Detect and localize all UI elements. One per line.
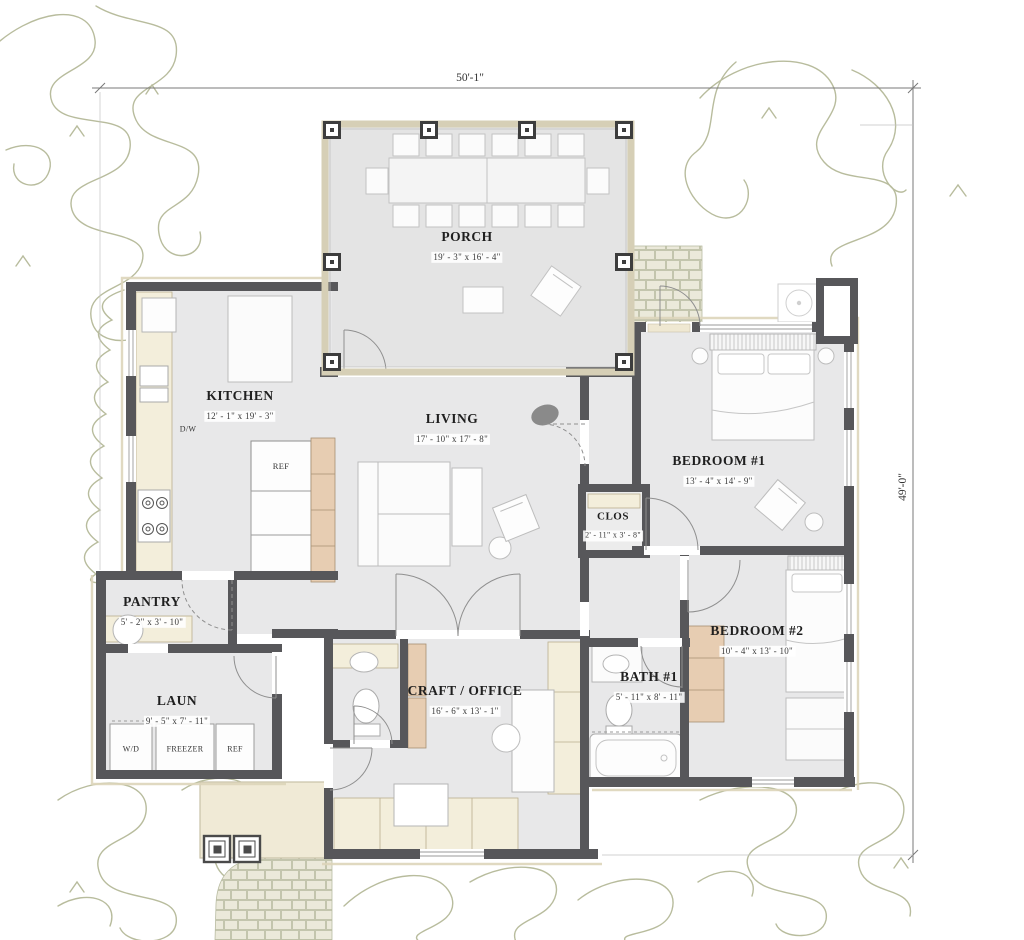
toilet	[606, 694, 632, 726]
range-stove	[138, 490, 170, 542]
bath1-sink	[603, 655, 629, 673]
floor-plan: 50'-1" 49'-0" PORCH 19' - 3" x 16' - 4" …	[0, 0, 1024, 940]
porch-coffee-table	[463, 287, 503, 313]
porch-dining-table	[389, 158, 585, 203]
craft-table	[394, 784, 448, 826]
corridor-floor	[235, 574, 332, 634]
bed-2	[786, 556, 848, 692]
laundry-appliances	[110, 721, 254, 772]
freezer	[156, 724, 214, 772]
refrigerator	[251, 441, 311, 491]
water-heater	[113, 615, 143, 645]
desk-chair	[492, 724, 520, 752]
kitchen-sink	[140, 366, 168, 386]
laundry-refrigerator	[216, 724, 254, 772]
wall-oven	[142, 298, 176, 332]
halfbath-sink	[350, 652, 378, 672]
floor-plan-drawing	[0, 0, 1024, 940]
washer-dryer	[110, 724, 152, 772]
bed-1	[710, 334, 816, 440]
halfbath-cabinet	[408, 644, 426, 696]
nightstand	[692, 348, 708, 364]
stone-path	[215, 858, 332, 940]
ceiling-fan-symbol	[778, 284, 820, 322]
nightstand	[818, 348, 834, 364]
kitchen-peninsula	[228, 296, 292, 382]
closet-shelf	[588, 494, 640, 508]
bedroom1-side-table	[805, 513, 823, 531]
island-cabinet	[251, 491, 311, 535]
